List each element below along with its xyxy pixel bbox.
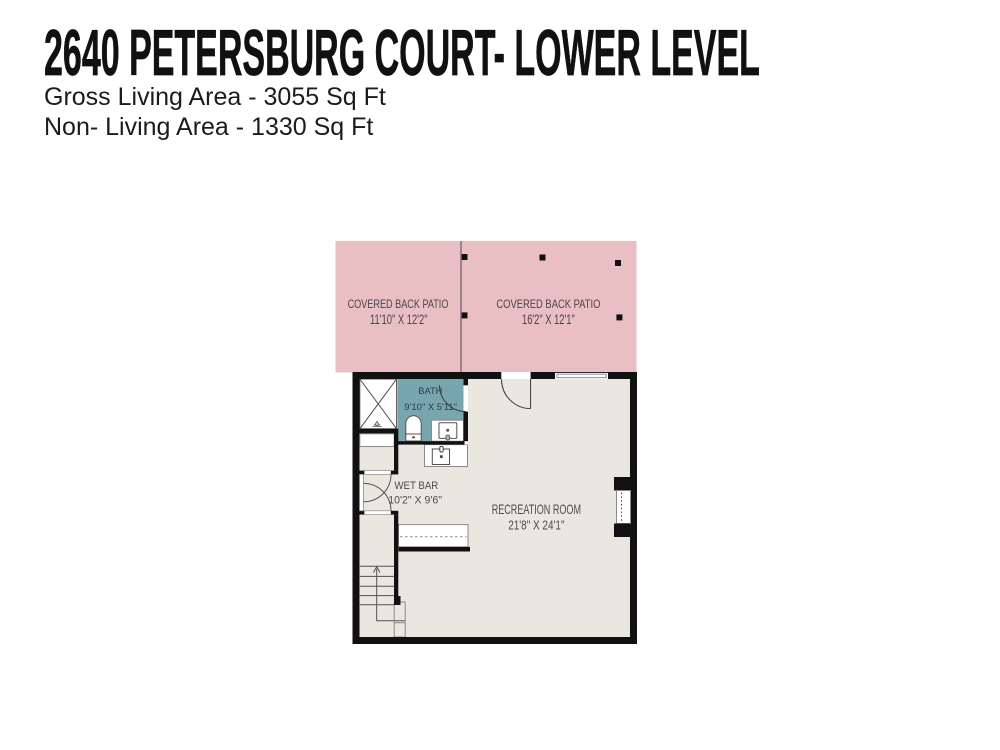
svg-text:WET BAR: WET BAR [394,480,438,492]
svg-text:COVERED BACK PATIO: COVERED BACK PATIO [348,297,449,311]
svg-text:21'8" X 24'1": 21'8" X 24'1" [508,518,565,533]
svg-text:16'2" X 12'1": 16'2" X 12'1" [522,312,575,327]
svg-text:COVERED BACK PATIO: COVERED BACK PATIO [496,297,600,311]
svg-text:11'10" X 12'2": 11'10" X 12'2" [370,312,428,327]
svg-text:9'10" X 5'11": 9'10" X 5'11" [404,402,457,412]
svg-text:BATH: BATH [418,386,442,396]
svg-text:RECREATION ROOM: RECREATION ROOM [492,502,581,517]
svg-text:10'2" X 9'6": 10'2" X 9'6" [388,495,442,507]
